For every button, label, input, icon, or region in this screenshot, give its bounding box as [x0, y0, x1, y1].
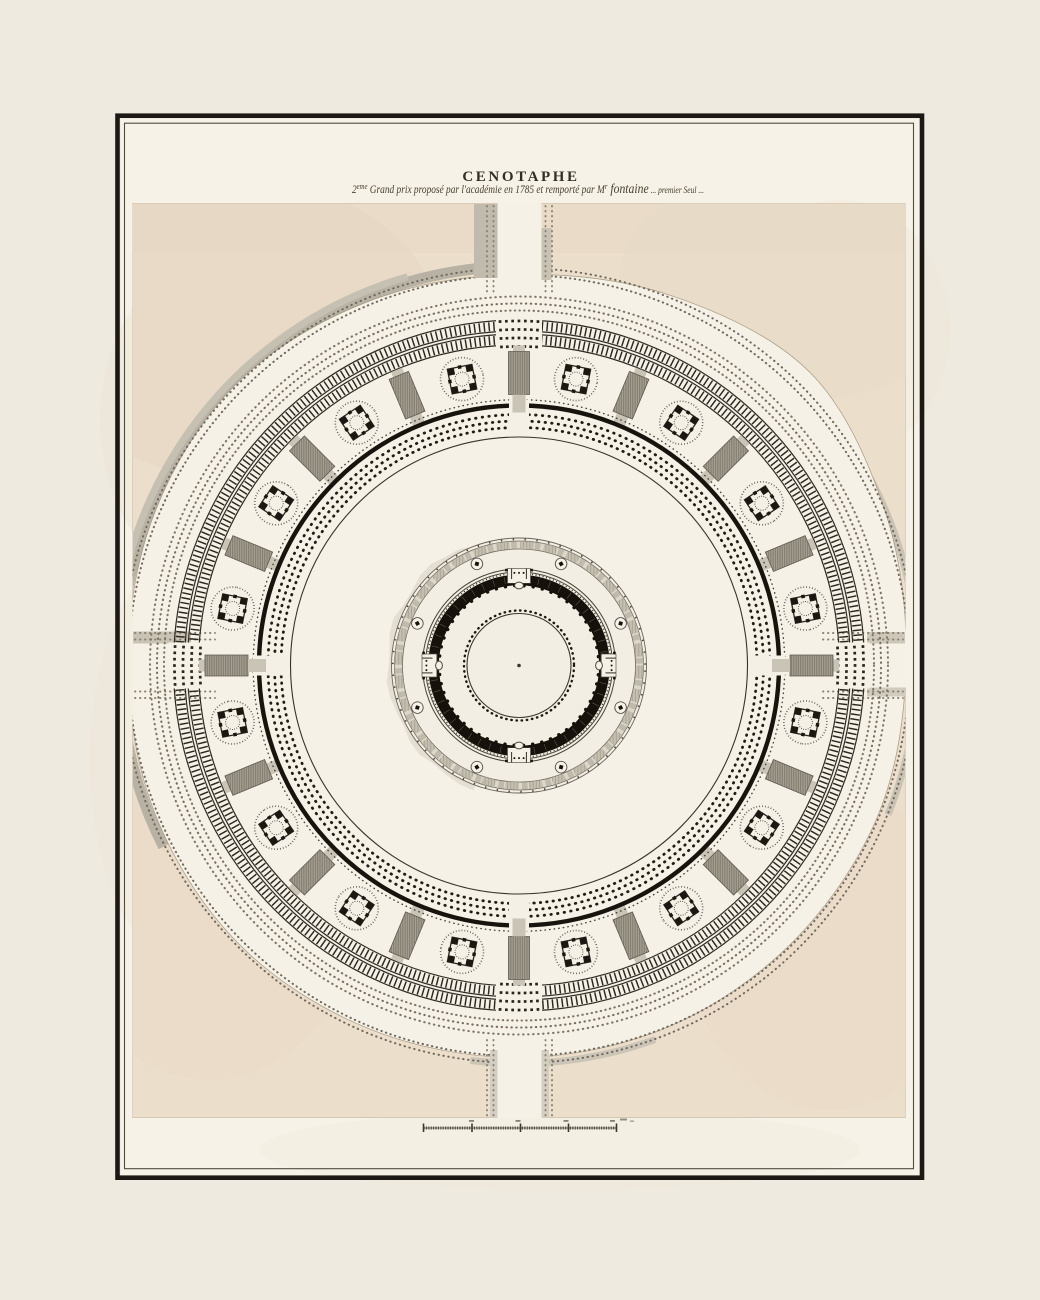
svg-text:2eme Grand prix proposé par l': 2eme Grand prix proposé par l'académie e…	[352, 182, 704, 197]
svg-text:CENOTAPHE: CENOTAPHE	[462, 169, 579, 185]
